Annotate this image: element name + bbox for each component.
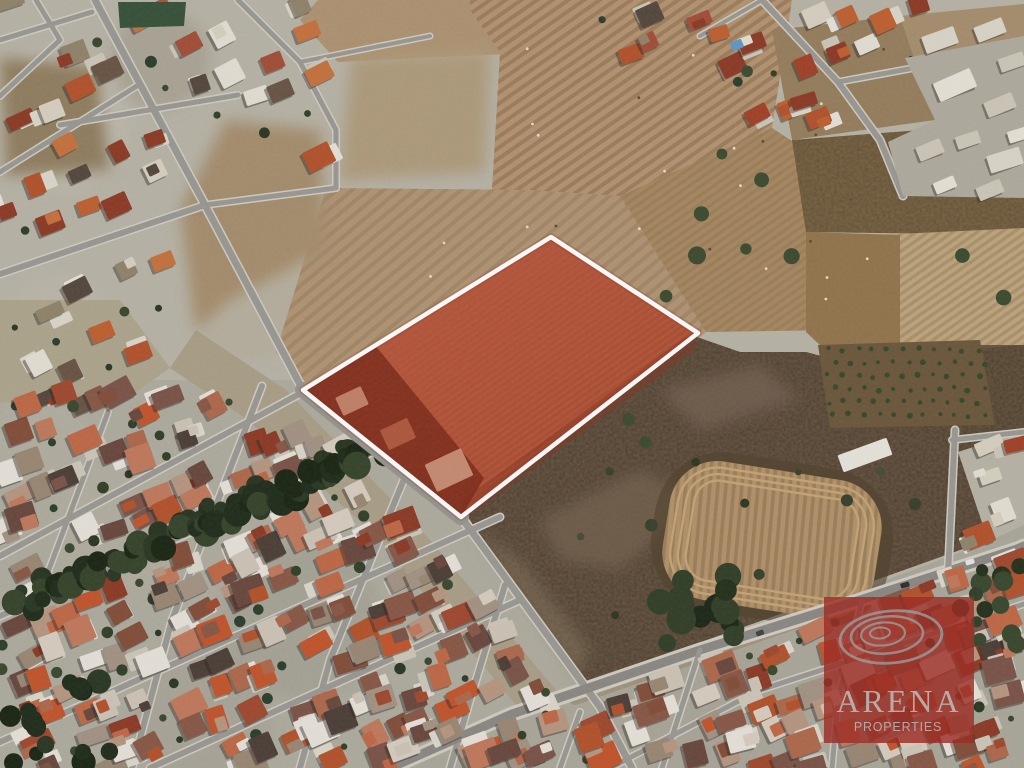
svg-text:ARENA: ARENA [836, 683, 961, 719]
svg-text:PROPERTIES: PROPERTIES [854, 720, 942, 734]
